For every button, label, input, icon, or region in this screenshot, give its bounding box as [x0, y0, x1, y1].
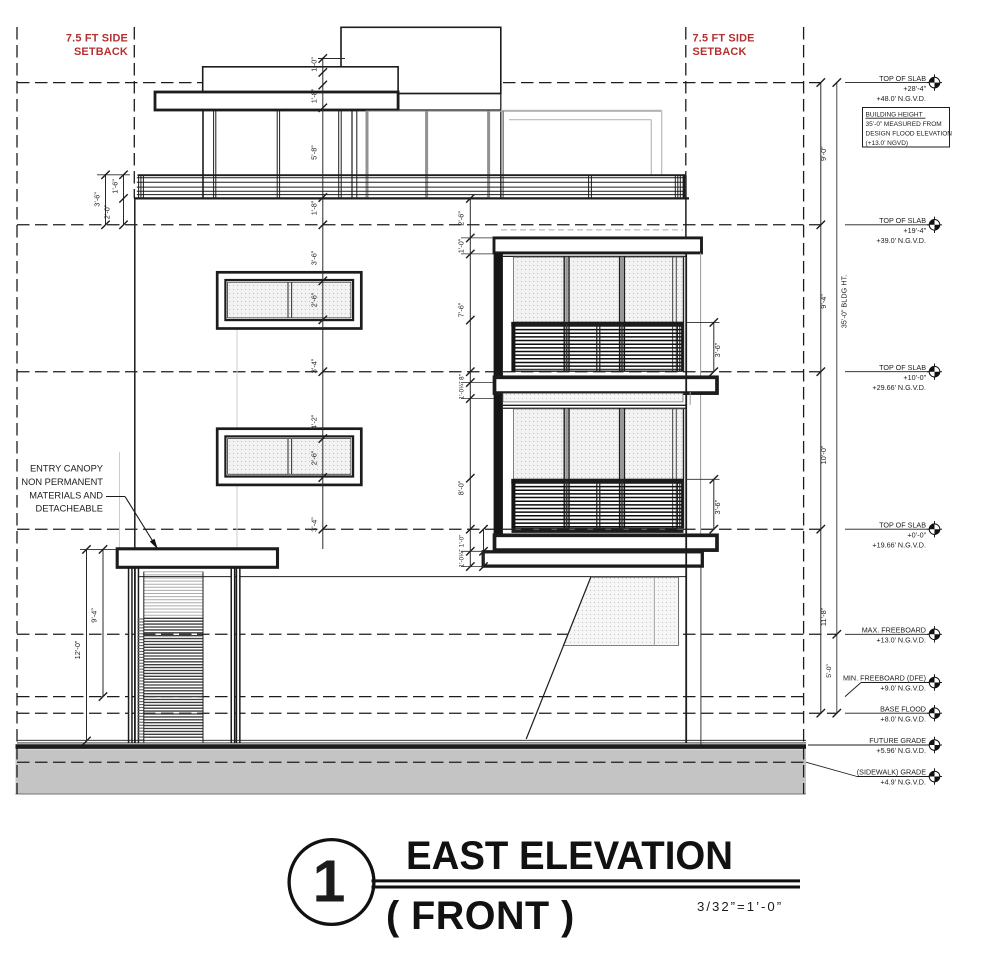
svg-text:2’-6”: 2’-6” [309, 292, 318, 307]
svg-text:3/32”=1’-0”: 3/32”=1’-0” [697, 899, 783, 914]
svg-text:DESIGN FLOOD ELEVATION: DESIGN FLOOD ELEVATION [866, 131, 953, 138]
svg-text:9’-4”: 9’-4” [90, 608, 99, 623]
svg-text:1’-0”: 1’-0” [309, 57, 318, 72]
svg-text:+19.66’ N.G.V.D.: +19.66’ N.G.V.D. [872, 541, 926, 550]
svg-text:7’-6”: 7’-6” [457, 302, 466, 317]
svg-text:+19’-4”: +19’-4” [903, 226, 926, 235]
svg-text:3’-6”: 3’-6” [309, 250, 318, 265]
svg-text:+5.96’ N.G.V.D.: +5.96’ N.G.V.D. [876, 746, 926, 755]
svg-text:9’-4”: 9’-4” [819, 294, 828, 309]
svg-text:3’-6”: 3’-6” [93, 192, 102, 207]
svg-text:8’-0”: 8’-0” [457, 480, 466, 495]
svg-text:ENTRY CANOPY: ENTRY CANOPY [30, 464, 103, 474]
svg-text:EAST ELEVATION: EAST ELEVATION [406, 834, 733, 878]
svg-text:( FRONT ): ( FRONT ) [386, 894, 575, 938]
svg-text:2’-0”: 2’-0” [103, 204, 112, 219]
svg-text:+13.0’ N.G.V.D.: +13.0’ N.G.V.D. [876, 636, 926, 645]
svg-text:+48.0’ N.G.V.D.: +48.0’ N.G.V.D. [876, 94, 926, 103]
svg-text:7.5 FT SIDE: 7.5 FT SIDE [693, 33, 755, 45]
svg-text:35’-0” MEASURED FROM: 35’-0” MEASURED FROM [866, 121, 942, 128]
svg-text:+9.0’ N.G.V.D.: +9.0’ N.G.V.D. [880, 684, 926, 693]
svg-text:2’-6”: 2’-6” [457, 211, 466, 226]
svg-text:MATERIALS AND: MATERIALS AND [29, 490, 103, 500]
svg-text:SETBACK: SETBACK [74, 46, 128, 58]
svg-text:3’-4”: 3’-4” [309, 517, 318, 532]
svg-text:DETACHEABLE: DETACHEABLE [35, 504, 103, 514]
svg-text:MAX. FREEBOARD: MAX. FREEBOARD [862, 626, 926, 635]
svg-text:TOP OF SLAB: TOP OF SLAB [879, 520, 926, 529]
svg-text:12’-0”: 12’-0” [73, 640, 82, 659]
svg-text:+10’-0”: +10’-0” [903, 373, 926, 382]
svg-text:7.5 FT SIDE: 7.5 FT SIDE [66, 33, 128, 45]
svg-text:+0’-0”: +0’-0” [907, 530, 926, 539]
svg-text:+4.9’ N.G.V.D.: +4.9’ N.G.V.D. [880, 778, 926, 787]
svg-text:1’-0¼”: 1’-0¼” [459, 382, 466, 400]
svg-text:1: 1 [313, 849, 346, 915]
svg-text:+8.0’ N.G.V.D.: +8.0’ N.G.V.D. [880, 714, 926, 723]
svg-text:TOP OF SLAB: TOP OF SLAB [879, 363, 926, 372]
svg-text:3’-6”: 3’-6” [713, 499, 722, 514]
svg-text:NON PERMANENT: NON PERMANENT [21, 477, 103, 487]
svg-text:5’-0”: 5’-0” [826, 663, 833, 677]
svg-text:5’-8”: 5’-8” [309, 145, 318, 160]
svg-text:TOP OF SLAB: TOP OF SLAB [879, 74, 926, 83]
svg-text:11’-8”: 11’-8” [819, 607, 828, 626]
svg-text:35’-0” BLDG HT.: 35’-0” BLDG HT. [840, 275, 849, 329]
svg-text:+29.66’ N.G.V.D.: +29.66’ N.G.V.D. [872, 383, 926, 392]
svg-text:9’-0”: 9’-0” [819, 146, 828, 161]
svg-text:3’-4”: 3’-4” [309, 358, 318, 373]
svg-text:BASE FLOOD: BASE FLOOD [880, 704, 926, 713]
svg-text:+39.0’ N.G.V.D.: +39.0’ N.G.V.D. [876, 236, 926, 245]
svg-text:TOP OF SLAB: TOP OF SLAB [879, 216, 926, 225]
svg-text:1’-8”: 1’-8” [309, 88, 318, 103]
svg-text:2’-6”: 2’-6” [309, 450, 318, 465]
svg-text:8”: 8” [459, 374, 466, 380]
svg-text:1’-8”: 1’-8” [309, 200, 318, 215]
svg-text:10’-0”: 10’-0” [819, 445, 828, 464]
svg-text:MIN. FREEBOARD (DFE): MIN. FREEBOARD (DFE) [843, 674, 926, 683]
svg-text:+28’-4”: +28’-4” [903, 84, 926, 93]
svg-text:(SIDEWALK) GRADE: (SIDEWALK) GRADE [857, 768, 926, 777]
svg-text:3’-6”: 3’-6” [713, 342, 722, 357]
svg-text:1’-6”: 1’-6” [111, 179, 120, 194]
svg-text:SETBACK: SETBACK [693, 46, 747, 58]
svg-text:4’-2”: 4’-2” [309, 414, 318, 429]
svg-text:FUTURE GRADE: FUTURE GRADE [869, 736, 926, 745]
svg-text:1’-0¼”: 1’-0¼” [459, 550, 466, 568]
svg-text:(+13.0’ NGVD): (+13.0’ NGVD) [866, 140, 909, 147]
svg-text:1’-0”: 1’-0” [459, 535, 466, 548]
svg-text:BUILDING HEIGHT: BUILDING HEIGHT [866, 112, 923, 119]
svg-text:1’-0”: 1’-0” [457, 238, 466, 253]
